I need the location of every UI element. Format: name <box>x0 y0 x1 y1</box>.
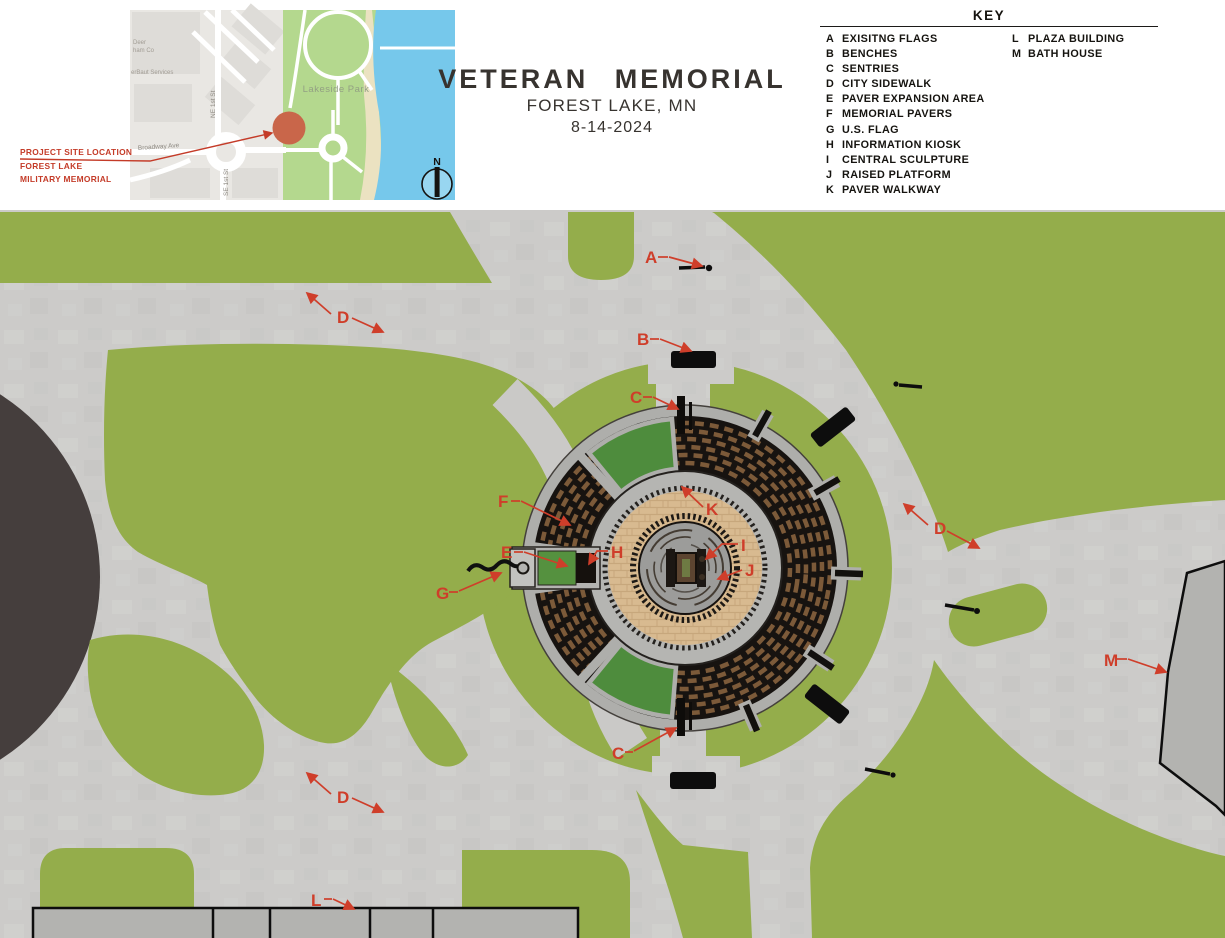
sentry-north <box>677 396 685 434</box>
plan-label-M: M <box>1104 651 1119 670</box>
legend-title: KEY <box>820 8 1158 27</box>
legend-item: GU.S. FLAG <box>826 123 985 138</box>
sheet-date: 8-14-2024 <box>438 117 786 139</box>
grass-northwest <box>0 212 492 283</box>
site-plan-rendering: A B C C D D D E F G H I J K L M <box>0 210 1225 938</box>
legend-item: CSENTRIES <box>826 62 985 77</box>
grass-top-tongue <box>568 212 634 280</box>
grass-plaza-blob-left <box>40 848 194 908</box>
project-site-marker <box>273 112 306 145</box>
plan-label-B: B <box>637 330 650 349</box>
plan-label-D-northwest: D <box>337 308 350 327</box>
sheet-location: FOREST LAKE, MN <box>438 94 786 117</box>
map-poi-fragment-1: Deer <box>133 40 146 46</box>
plaza-building <box>33 908 578 938</box>
paver-expansion-area <box>538 551 576 585</box>
legend-item: JRAISED PLATFORM <box>826 168 985 183</box>
plan-label-K: K <box>706 500 719 519</box>
flagpole-base <box>518 563 529 574</box>
veteran-memorial-site-plan-sheet: Lakeside Park NE 1st St Broadway Ave SE … <box>0 0 1225 938</box>
legend-item: BBENCHES <box>826 47 985 62</box>
map-street-se-1st: SE 1st St <box>223 169 230 196</box>
central-sculpture <box>666 549 706 587</box>
plan-label-G: G <box>436 584 450 603</box>
legend-item: LPLAZA BUILDING <box>1012 32 1124 47</box>
map-park-label: Lakeside Park <box>303 84 370 95</box>
legend-item: AEXISITNG FLAGS <box>826 32 985 47</box>
plan-label-J: J <box>745 561 755 580</box>
bench-north <box>671 351 716 368</box>
north-label: N <box>433 156 441 168</box>
title-block: VETERAN MEMORIAL FOREST LAKE, MN 8-14-20… <box>438 64 786 139</box>
plan-label-E: E <box>501 543 513 562</box>
legend-item: ICENTRAL SCULPTURE <box>826 153 985 168</box>
plan-label-D-southwest: D <box>337 788 350 807</box>
map-poi-fragment-2: ham Co <box>133 48 155 54</box>
plan-label-A: A <box>645 248 658 267</box>
map-poi-fragment-3: erBaut Services <box>131 70 173 76</box>
legend-item: MBATH HOUSE <box>1012 47 1124 62</box>
plan-label-F: F <box>498 492 509 511</box>
bench-south <box>670 772 716 789</box>
plan-label-I: I <box>741 536 746 555</box>
callout-line-1: PROJECT SITE LOCATION <box>20 147 132 157</box>
callout-line-3: MILITARY MEMORIAL <box>20 174 111 184</box>
legend-item: HINFORMATION KIOSK <box>826 138 985 153</box>
legend-item: DCITY SIDEWALK <box>826 77 985 92</box>
sheet-title: VETERAN MEMORIAL <box>438 64 786 94</box>
plan-label-C-north: C <box>630 388 643 407</box>
legend-item: KPAVER WALKWAY <box>826 183 985 198</box>
location-map-inset: Lakeside Park NE 1st St Broadway Ave SE … <box>0 0 455 200</box>
legend-column-2: LPLAZA BUILDING MBATH HOUSE <box>1012 32 1124 62</box>
legend-item: EPAVER EXPANSION AREA <box>826 92 985 107</box>
legend-item: FMEMORIAL PAVERS <box>826 107 985 122</box>
legend-column-1: AEXISITNG FLAGS BBENCHES CSENTRIES DCITY… <box>826 32 985 198</box>
plan-label-L: L <box>311 891 322 910</box>
plan-label-C-south: C <box>612 744 625 763</box>
callout-line-2: FOREST LAKE <box>20 161 83 171</box>
map-street-ne-1st: NE 1st St <box>210 90 217 118</box>
plan-label-H: H <box>611 543 624 562</box>
sentry-south <box>677 698 685 736</box>
map-park-circle <box>305 12 371 78</box>
plan-label-D-east: D <box>934 519 947 538</box>
legend: KEY AEXISITNG FLAGS BBENCHES CSENTRIES D… <box>820 8 1158 32</box>
